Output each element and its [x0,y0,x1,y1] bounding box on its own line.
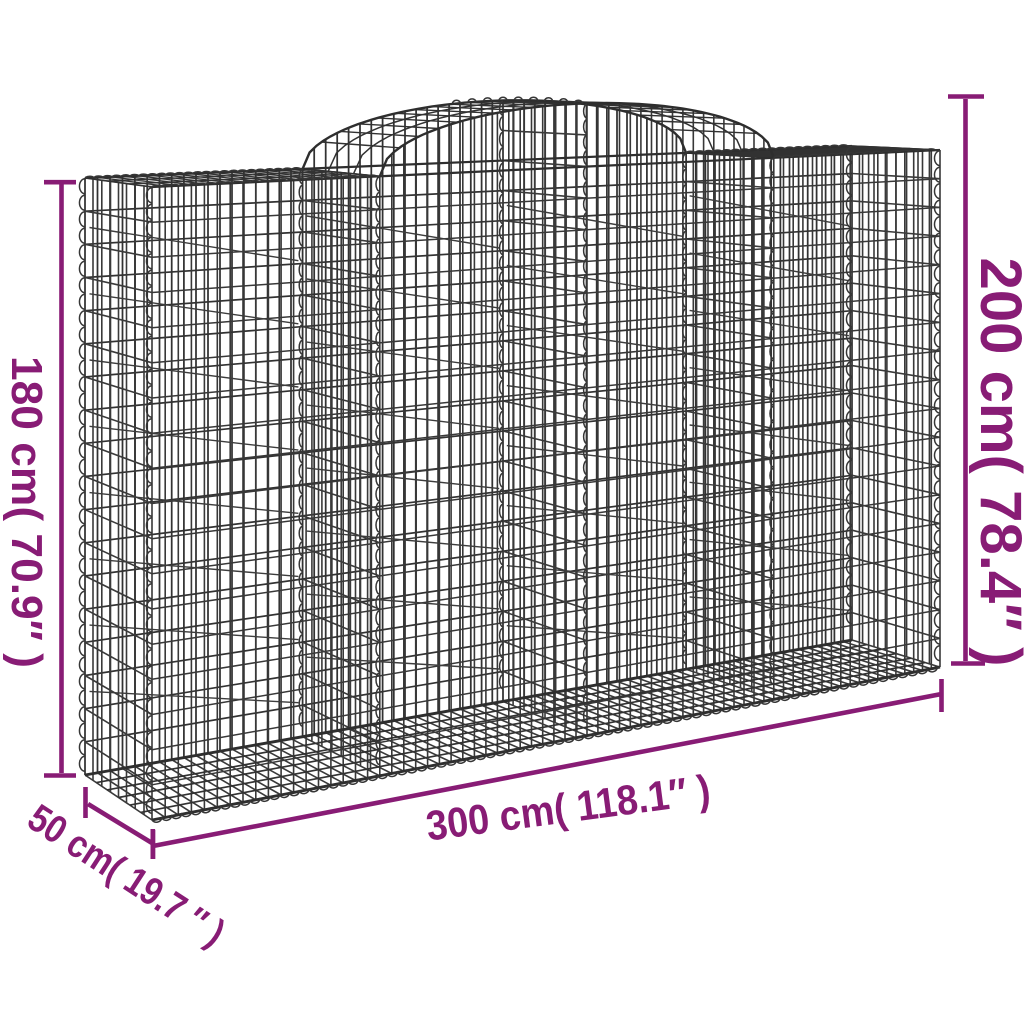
svg-text:180 cm( 70.9″ ): 180 cm( 70.9″ ) [2,356,51,668]
svg-text:50 cm( 19.7 ″ ): 50 cm( 19.7 ″ ) [20,796,232,955]
svg-text:300 cm( 118.1″ ): 300 cm( 118.1″ ) [423,766,713,850]
svg-text:200 cm( 78.4″ ): 200 cm( 78.4″ ) [968,258,1024,667]
